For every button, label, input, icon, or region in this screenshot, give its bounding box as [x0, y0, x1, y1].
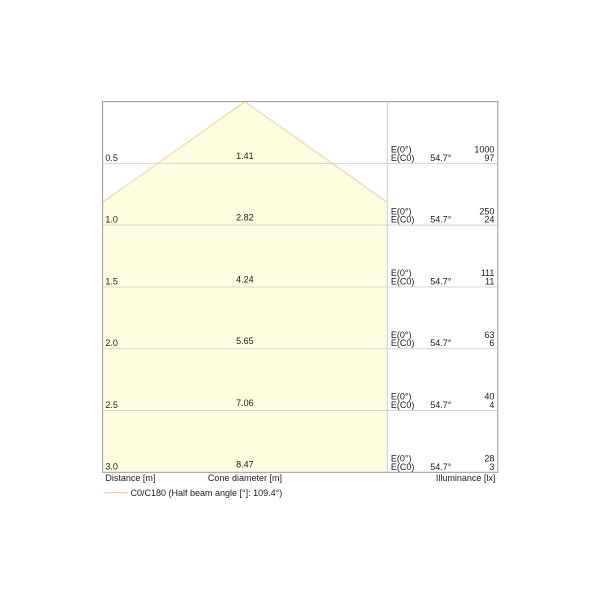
svg-text:2.0: 2.0	[105, 338, 118, 348]
svg-text:54.7°: 54.7°	[430, 153, 452, 163]
svg-text:54.7°: 54.7°	[430, 400, 452, 410]
svg-text:4.24: 4.24	[236, 274, 254, 284]
svg-text:0.5: 0.5	[105, 153, 118, 163]
svg-text:6: 6	[489, 338, 494, 348]
svg-text:2.82: 2.82	[236, 213, 254, 223]
svg-text:54.7°: 54.7°	[430, 215, 452, 225]
svg-text:7.06: 7.06	[236, 398, 254, 408]
svg-text:11: 11	[485, 276, 494, 286]
svg-text:1.41: 1.41	[236, 151, 254, 161]
svg-text:2.5: 2.5	[105, 400, 118, 410]
svg-text:C0/C180 (Half beam angle [°]:: C0/C180 (Half beam angle [°]: 109.4°)	[131, 488, 283, 498]
svg-text:Distance [m]: Distance [m]	[105, 473, 155, 483]
svg-text:3: 3	[489, 462, 494, 472]
svg-text:54.7°: 54.7°	[430, 338, 452, 348]
svg-text:97: 97	[484, 153, 494, 163]
svg-text:1.0: 1.0	[105, 215, 118, 225]
svg-text:E(C0): E(C0)	[391, 400, 415, 410]
svg-text:8.47: 8.47	[236, 460, 254, 470]
svg-text:1.5: 1.5	[105, 276, 118, 286]
svg-text:E(C0): E(C0)	[391, 462, 415, 472]
svg-text:5.65: 5.65	[236, 336, 254, 346]
svg-text:4: 4	[489, 400, 494, 410]
svg-text:54.7°: 54.7°	[430, 276, 452, 286]
svg-text:3.0: 3.0	[105, 462, 118, 472]
svg-text:E(C0): E(C0)	[391, 276, 415, 286]
svg-text:Cone diameter [m]: Cone diameter [m]	[208, 473, 282, 483]
svg-text:Illuminance [lx]: Illuminance [lx]	[436, 473, 496, 483]
svg-text:54.7°: 54.7°	[430, 462, 452, 472]
svg-text:E(C0): E(C0)	[391, 153, 415, 163]
svg-text:E(C0): E(C0)	[391, 215, 415, 225]
svg-text:E(C0): E(C0)	[391, 338, 415, 348]
svg-text:24: 24	[484, 215, 494, 225]
